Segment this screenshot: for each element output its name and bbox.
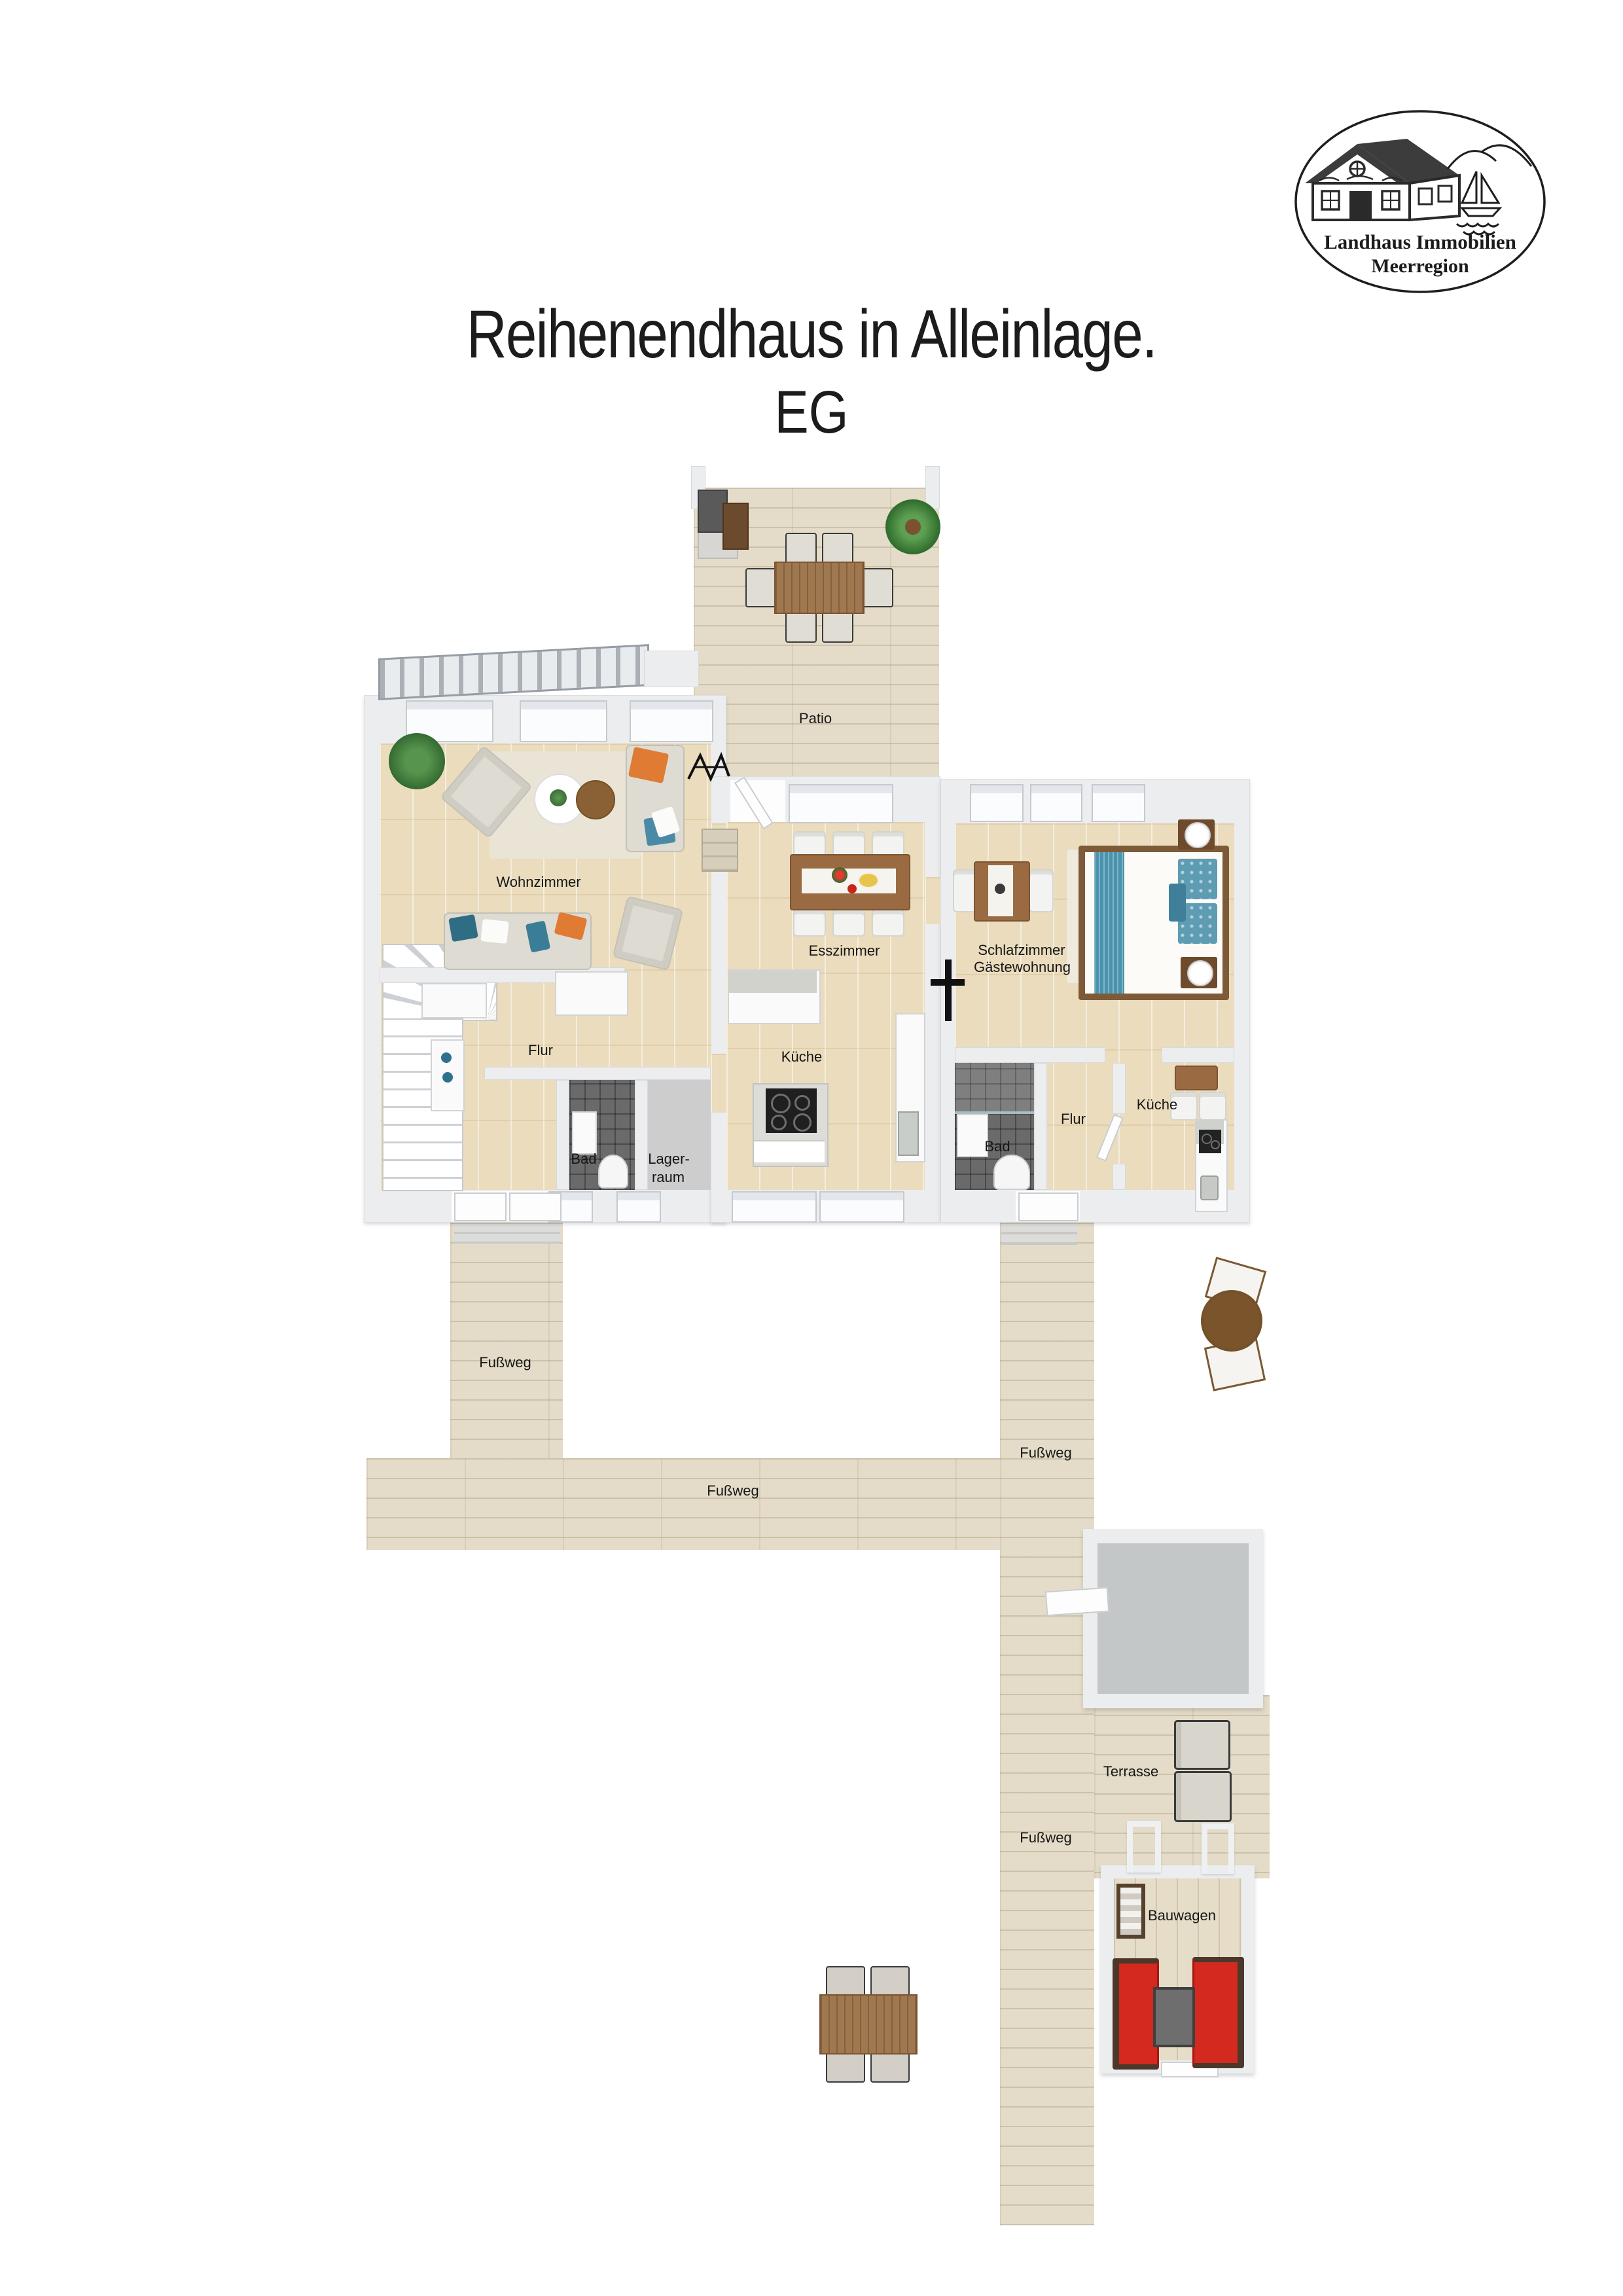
- burner: [794, 1095, 810, 1111]
- path-right: [1000, 1223, 1094, 2225]
- entry-door-leaf-1: [454, 1193, 507, 1221]
- room-label-lager-2: raum: [652, 1169, 685, 1186]
- fruit-plate: [858, 872, 879, 888]
- lounge-chair: [1174, 1720, 1230, 1770]
- patio-wall-stub-right: [925, 466, 940, 509]
- wall-bedroom-bottom-b: [1162, 1047, 1234, 1063]
- garden-chair: [826, 1966, 865, 1998]
- logo-text-2: Meerregion: [1371, 255, 1469, 277]
- room-label-schlafzimmer-2: Gästewohnung: [974, 959, 1071, 976]
- wall-bath-left-side: [556, 1080, 569, 1190]
- patio-chair: [745, 568, 777, 607]
- kitchen-right-counter: [1195, 1119, 1228, 1212]
- room-label-esszimmer: Esszimmer: [809, 942, 880, 960]
- window-livingroom-3: [630, 700, 713, 742]
- bauwagen-table: [1153, 1987, 1195, 2047]
- dining-chair: [872, 909, 904, 937]
- wall-bath-storage-top: [484, 1067, 711, 1080]
- cooktop: [766, 1088, 817, 1133]
- patio-table: [774, 562, 865, 614]
- entry-door-leaf-2: [509, 1193, 562, 1221]
- patio-chair: [822, 611, 853, 643]
- wall-bedroom-bottom-a: [955, 1047, 1105, 1063]
- drying-rack-icon: [687, 750, 730, 781]
- red-sofa: [1113, 1958, 1159, 2070]
- lamp: [1187, 960, 1213, 986]
- window-bedroom-1: [970, 784, 1024, 822]
- entry-steps-right: [1001, 1224, 1077, 1245]
- nightstand: [1181, 957, 1217, 988]
- page-subtitle: EG: [122, 378, 1501, 447]
- logo-text-1: Landhaus Immobilien: [1324, 230, 1516, 253]
- shower-zone: [955, 1063, 1034, 1114]
- bathroom-right-sink: [957, 1114, 988, 1157]
- dining-chair: [832, 909, 865, 937]
- window-storage: [616, 1191, 661, 1223]
- area-label-bauwagen: Bauwagen: [1148, 1907, 1216, 1924]
- burner: [1211, 1140, 1220, 1149]
- patio-steps: [702, 829, 738, 872]
- door-opening-hall-kitchen: [711, 1054, 726, 1113]
- plant: [389, 733, 445, 789]
- heater-symbol-bar: [931, 979, 965, 986]
- pergola-end-beam: [644, 651, 699, 687]
- grill-bench: [722, 503, 749, 550]
- wall-bath-storage-divider: [635, 1080, 648, 1190]
- path-bottom: [366, 1458, 1094, 1550]
- pergola-awning: [378, 644, 649, 700]
- table-decor: [995, 884, 1005, 894]
- dining-table: [790, 854, 910, 910]
- lounge-chair: [1174, 1771, 1232, 1822]
- coffee-table-plant: [550, 789, 567, 806]
- kitchen-sink: [898, 1111, 919, 1156]
- area-label-terrasse: Terrasse: [1103, 1763, 1158, 1780]
- room-label-flur-left: Flur: [528, 1042, 553, 1059]
- patio-chair: [785, 611, 817, 643]
- kitchen-island: [753, 1083, 829, 1167]
- bedroom-table: [974, 861, 1030, 922]
- pillow-white-2: [480, 919, 508, 944]
- patio-chair: [785, 533, 817, 564]
- room-label-schlafzimmer-1: Schlafzimmer: [978, 942, 1065, 959]
- dining-chair: [793, 909, 826, 937]
- patio-chair: [862, 568, 893, 607]
- path-label-fussweg-right-upper: Fußweg: [1020, 1444, 1071, 1462]
- lamp: [1185, 822, 1211, 848]
- room-label-kueche-right: Küche: [1137, 1096, 1177, 1113]
- wall-hall-kitchen-right-b: [1113, 1164, 1126, 1190]
- heater-symbol: [945, 960, 952, 1021]
- wall-bath-hall-right: [1034, 1063, 1047, 1190]
- path-label-fussweg-left: Fußweg: [479, 1354, 531, 1371]
- kitchen-right-cooktop: [1199, 1130, 1221, 1153]
- burner: [771, 1094, 791, 1113]
- door-opening-dining-bedroom: [925, 877, 940, 924]
- path-left: [450, 1223, 563, 1458]
- kitchen-right-sink: [1200, 1175, 1219, 1200]
- burner: [793, 1113, 811, 1132]
- round-table: [1201, 1290, 1262, 1352]
- coffee-table-brown: [576, 780, 615, 819]
- path-label-fussweg-bottom: Fußweg: [707, 1482, 758, 1499]
- pillow-teal-1: [448, 914, 478, 942]
- garden-table: [819, 1994, 918, 2054]
- bathroom-left-toilet: [598, 1155, 628, 1189]
- company-logo: Landhaus Immobilien Meerregion: [1291, 103, 1550, 297]
- wall-hall-kitchen-right-a: [1113, 1063, 1126, 1114]
- kitchen-counter-top: [728, 969, 821, 1024]
- window-kitchen-2: [819, 1191, 904, 1223]
- room-label-flur-right: Flur: [1061, 1111, 1086, 1128]
- entry-steps-left: [454, 1224, 560, 1244]
- kitchen-right-table: [1175, 1066, 1218, 1090]
- burner: [771, 1115, 787, 1130]
- patio-plant-pot: [905, 519, 921, 535]
- window-bedroom-2: [1030, 784, 1082, 822]
- window-kitchen-1: [732, 1191, 817, 1223]
- bowl-blue-2: [442, 1072, 453, 1083]
- bedroom-chair: [1029, 869, 1054, 912]
- room-label-lager-1: Lager-: [648, 1151, 690, 1168]
- room-label-kueche-left: Küche: [781, 1049, 822, 1066]
- garden-chair: [870, 2051, 910, 2083]
- window-bedroom-3: [1092, 784, 1145, 822]
- path-label-fussweg-right-lower: Fußweg: [1020, 1829, 1071, 1846]
- window-dining: [789, 784, 893, 823]
- bathroom-right-toilet: [993, 1155, 1030, 1190]
- flower-bouquet: [832, 867, 847, 883]
- fruit-bowl: [847, 884, 857, 893]
- terrasse-gate: [1045, 1587, 1109, 1617]
- island-cabinet-front: [754, 1140, 825, 1162]
- window-livingroom-2: [520, 700, 607, 742]
- garden-chair: [826, 2051, 865, 2083]
- fireplace: [1116, 1884, 1145, 1939]
- kitchen-counter-surface: [729, 971, 817, 993]
- nightstand: [1178, 819, 1215, 850]
- patio-chair: [822, 533, 853, 564]
- bowl-blue-1: [441, 1052, 452, 1063]
- hall-desk: [431, 1039, 465, 1111]
- bathroom-left-sink: [572, 1111, 597, 1155]
- dresser: [555, 971, 628, 1016]
- page: { "logo": { "line1": "Landhaus Immobilie…: [0, 0, 1623, 2296]
- room-label-patio: Patio: [799, 710, 832, 727]
- garden-chair: [870, 1966, 910, 1998]
- red-sofa: [1192, 1957, 1244, 2068]
- entry-door-leaf-right: [1018, 1193, 1079, 1221]
- sideboard: [421, 983, 487, 1018]
- page-title: Reihenendhaus in Alleinlage.: [146, 296, 1477, 374]
- room-label-bad-left: Bad: [571, 1151, 596, 1168]
- railing: [1127, 1821, 1161, 1873]
- kitchen-right-chair: [1199, 1092, 1226, 1121]
- terrasse-enclosure: [1083, 1529, 1263, 1708]
- kitchen-counter-right: [895, 1013, 925, 1162]
- room-label-wohnzimmer: Wohnzimmer: [496, 874, 580, 891]
- bed-pillow-teal: [1169, 884, 1186, 922]
- railing: [1202, 1823, 1234, 1874]
- room-label-bad-right: Bad: [984, 1138, 1010, 1155]
- bed-runner-teal: [1094, 852, 1124, 994]
